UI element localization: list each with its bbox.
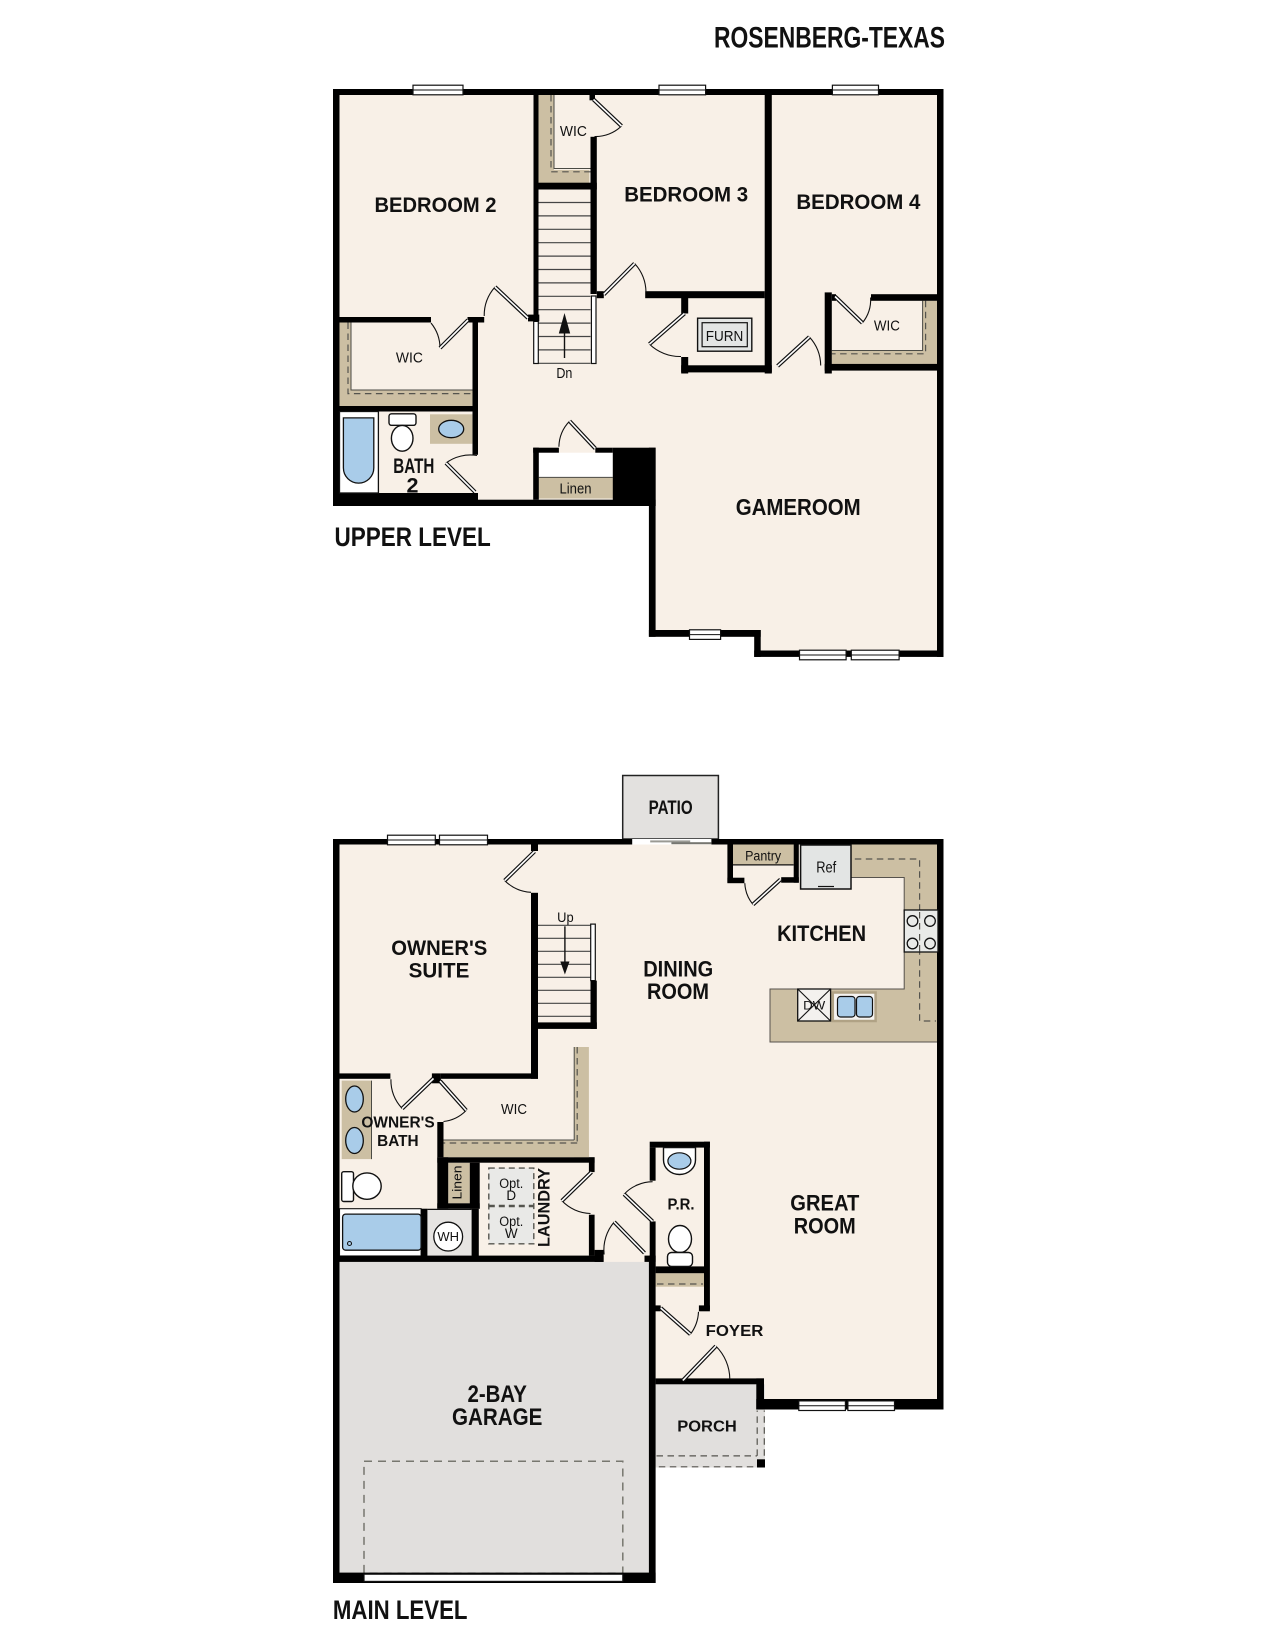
- svg-text:2: 2: [407, 473, 419, 497]
- svg-text:WH: WH: [437, 1229, 459, 1244]
- svg-text:FURN: FURN: [706, 328, 744, 345]
- svg-text:UPPER LEVEL: UPPER LEVEL: [334, 522, 490, 552]
- svg-text:ROSENBERG-TEXAS: ROSENBERG-TEXAS: [714, 21, 945, 54]
- svg-text:ROOM: ROOM: [647, 979, 709, 1004]
- svg-text:GREAT: GREAT: [790, 1191, 860, 1216]
- svg-text:Up: Up: [557, 910, 574, 925]
- svg-text:BEDROOM 3: BEDROOM 3: [624, 183, 748, 207]
- svg-text:Linen: Linen: [449, 1166, 464, 1200]
- svg-text:PATIO: PATIO: [649, 798, 693, 819]
- svg-text:WIC: WIC: [396, 350, 423, 367]
- svg-text:BEDROOM 4: BEDROOM 4: [796, 190, 920, 214]
- svg-text:BATH: BATH: [377, 1133, 419, 1150]
- svg-text:DINING: DINING: [643, 957, 713, 982]
- svg-text:SUITE: SUITE: [409, 959, 470, 983]
- svg-text:Pantry: Pantry: [745, 848, 781, 863]
- svg-text:GAMEROOM: GAMEROOM: [736, 494, 861, 520]
- svg-text:Ref: Ref: [816, 860, 836, 877]
- svg-text:DW: DW: [803, 999, 826, 1013]
- svg-text:OWNER'S: OWNER'S: [361, 1115, 435, 1132]
- svg-text:Dn: Dn: [556, 366, 572, 382]
- svg-text:ROOM: ROOM: [794, 1214, 856, 1239]
- svg-text:PORCH: PORCH: [677, 1419, 737, 1436]
- svg-text:GARAGE: GARAGE: [452, 1404, 543, 1431]
- svg-text:OWNER'S: OWNER'S: [391, 936, 487, 960]
- svg-text:KITCHEN: KITCHEN: [777, 921, 866, 946]
- svg-text:WIC: WIC: [560, 123, 587, 140]
- svg-text:D: D: [506, 1188, 516, 1203]
- svg-text:LAUNDRY: LAUNDRY: [535, 1167, 554, 1247]
- svg-text:BEDROOM 2: BEDROOM 2: [375, 193, 497, 217]
- svg-text:WIC: WIC: [874, 318, 900, 335]
- svg-text:Linen: Linen: [560, 481, 592, 498]
- svg-text:FOYER: FOYER: [706, 1323, 764, 1340]
- svg-text:WIC: WIC: [501, 1101, 527, 1118]
- svg-text:P.R.: P.R.: [668, 1197, 695, 1214]
- svg-text:MAIN LEVEL: MAIN LEVEL: [333, 1595, 468, 1625]
- svg-text:W: W: [505, 1226, 518, 1241]
